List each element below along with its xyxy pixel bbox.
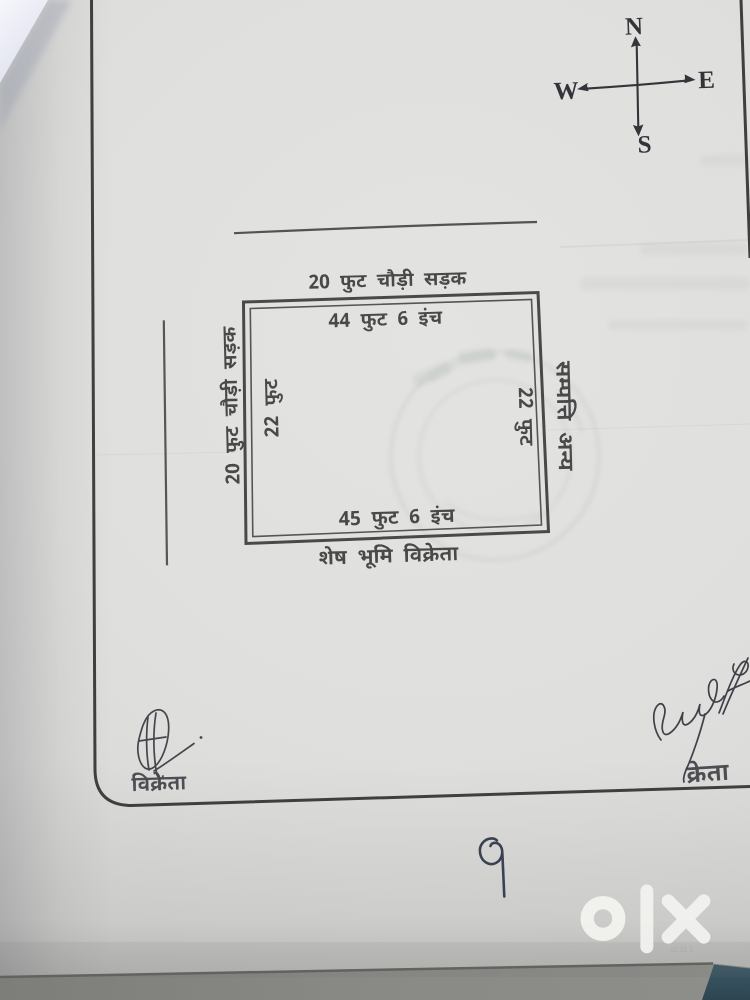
svg-text:12:31 2: 12:31 2: [670, 947, 694, 954]
svg-text:E: E: [698, 67, 716, 95]
svg-text:N: N: [625, 13, 644, 41]
svg-text:S: S: [637, 131, 652, 158]
svg-text:W: W: [553, 78, 579, 106]
